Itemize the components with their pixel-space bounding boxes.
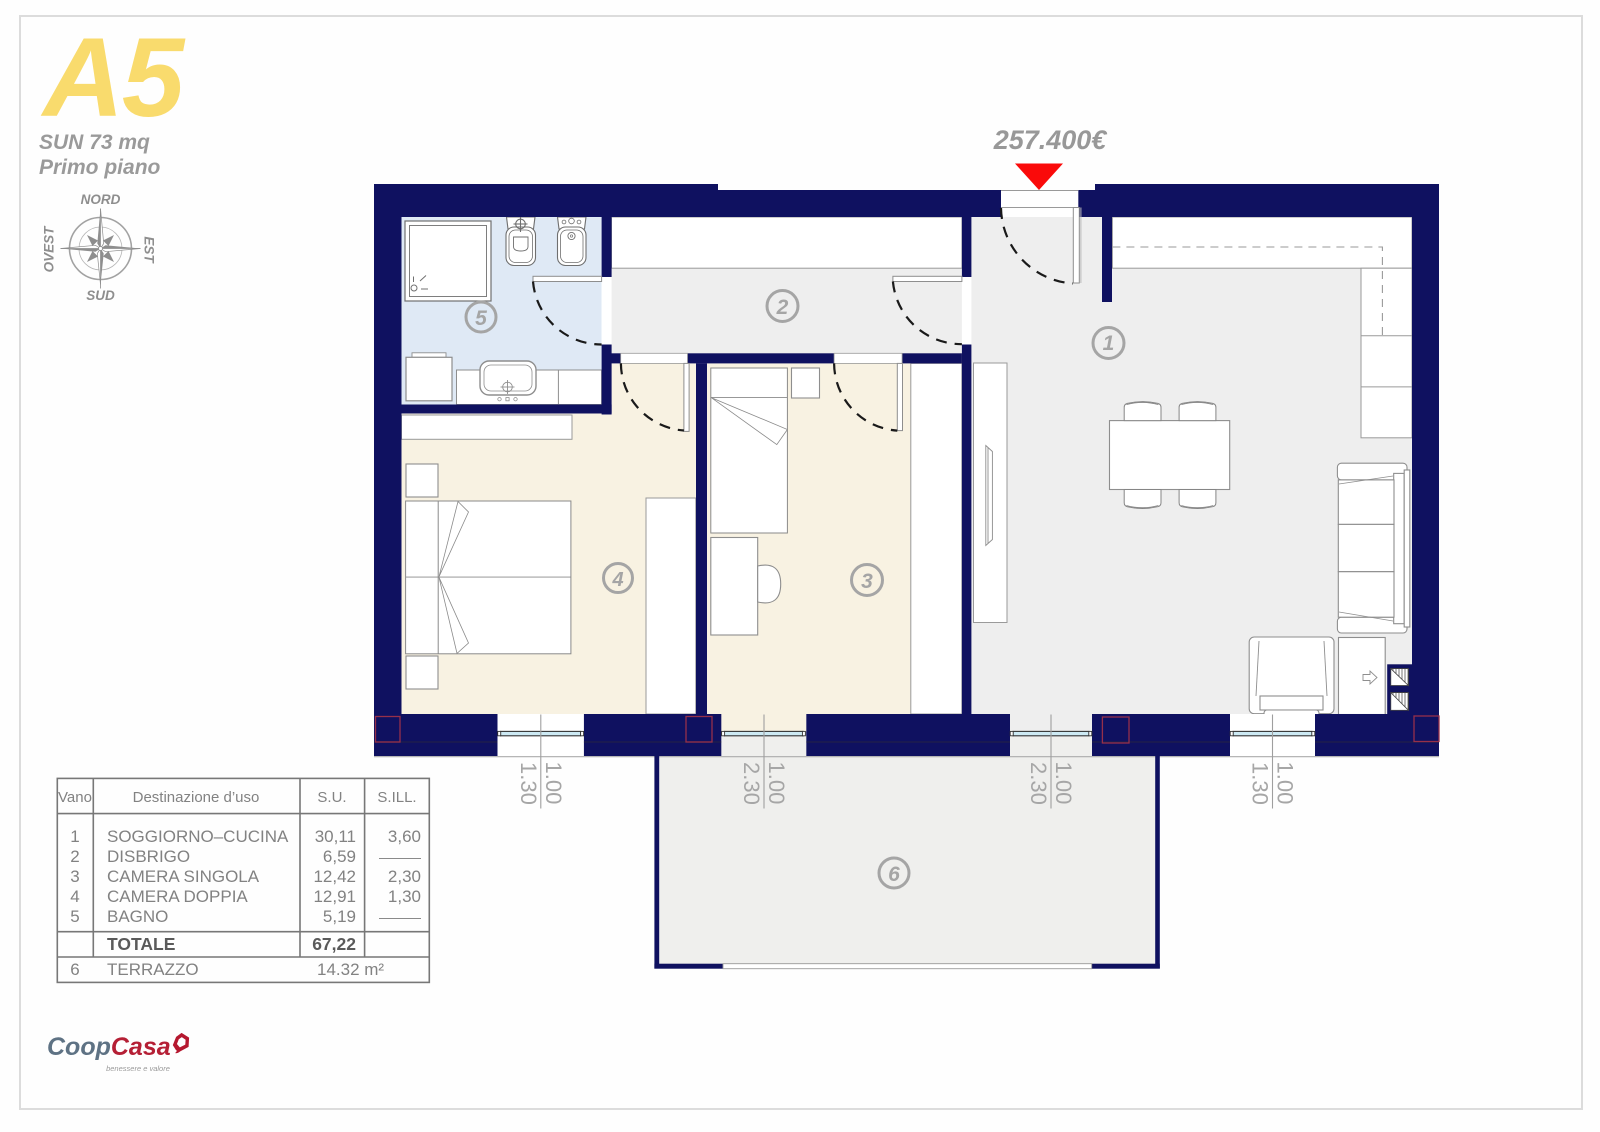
svg-text:CAMERA SINGOLA: CAMERA SINGOLA [107, 867, 260, 886]
svg-text:14.32 m²: 14.32 m² [317, 960, 384, 979]
svg-text:6,59: 6,59 [323, 847, 356, 866]
svg-text:DISBRIGO: DISBRIGO [107, 847, 190, 866]
svg-text:S.U.: S.U. [317, 789, 346, 806]
svg-text:Destinazione d’uso: Destinazione d’uso [133, 789, 260, 806]
svg-text:1: 1 [70, 827, 79, 846]
svg-text:———: ——— [379, 849, 421, 865]
svg-text:12,42: 12,42 [313, 867, 356, 886]
svg-text:SOGGIORNO–CUCINA: SOGGIORNO–CUCINA [107, 827, 289, 846]
svg-text:67,22: 67,22 [312, 934, 356, 954]
svg-text:CAMERA DOPPIA: CAMERA DOPPIA [107, 887, 248, 906]
svg-text:Vano: Vano [58, 789, 92, 806]
svg-text:5: 5 [70, 907, 79, 926]
svg-text:30,11: 30,11 [315, 827, 356, 846]
svg-text:TERRAZZO: TERRAZZO [107, 960, 199, 979]
svg-text:12,91: 12,91 [313, 887, 356, 906]
svg-text:TOTALE: TOTALE [107, 934, 175, 954]
svg-text:2,30: 2,30 [388, 867, 421, 886]
svg-text:6: 6 [70, 960, 79, 979]
svg-text:2: 2 [70, 847, 79, 866]
svg-text:S.ILL.: S.ILL. [377, 789, 416, 806]
svg-text:———: ——— [379, 909, 421, 925]
svg-text:1,30: 1,30 [388, 887, 421, 906]
svg-text:5,19: 5,19 [323, 907, 356, 926]
svg-text:4: 4 [70, 887, 79, 906]
svg-text:BAGNO: BAGNO [107, 907, 168, 926]
svg-text:3: 3 [70, 867, 79, 886]
svg-text:3,60: 3,60 [388, 827, 421, 846]
